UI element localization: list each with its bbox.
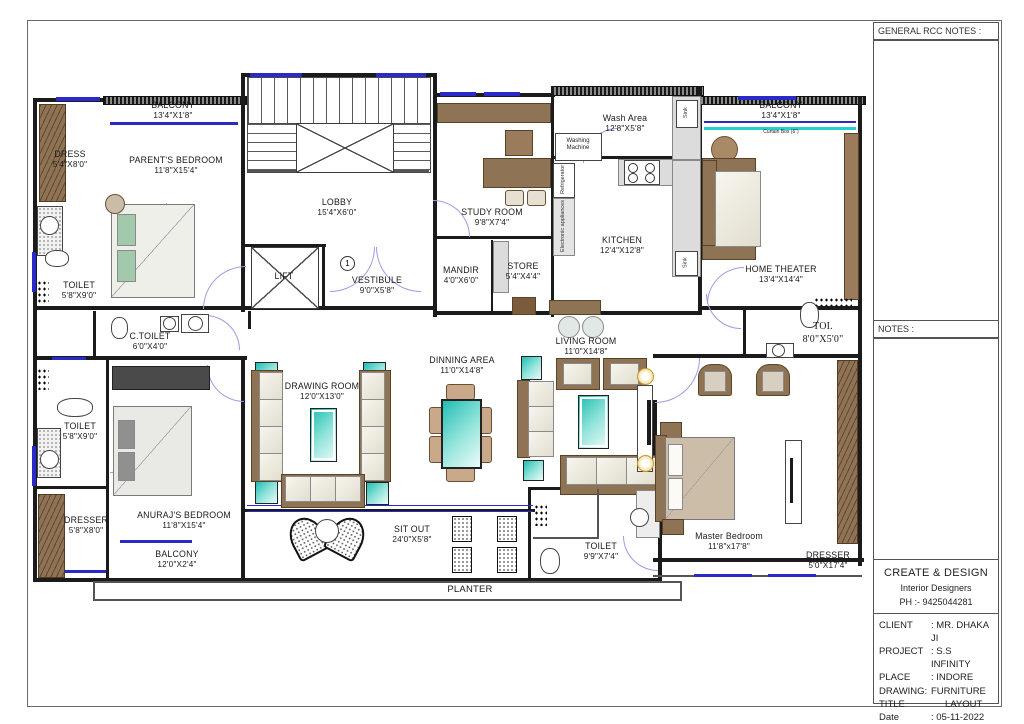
planter-line	[93, 581, 95, 599]
room-label-store: STORE5'4"X4'4"	[506, 261, 540, 283]
side-table	[662, 519, 684, 535]
sofa-cushion	[310, 476, 336, 502]
armchair-cushion	[762, 371, 784, 392]
sofa-cushion	[596, 457, 627, 485]
room-label-balcony-tl: BALCONY13'4"X1'8"	[151, 100, 194, 122]
shower-fittings	[534, 504, 547, 526]
armchair-cushion	[704, 371, 726, 392]
stair-treads	[392, 123, 431, 173]
planter-line	[93, 599, 682, 601]
center-table	[310, 408, 337, 462]
burner	[645, 163, 655, 173]
washing-machine-label: Washing Machine	[556, 138, 600, 152]
sofa-cushion	[361, 372, 385, 400]
window	[694, 574, 752, 577]
wall-hatched	[551, 86, 704, 96]
info-row-client: CLIENT: MR. DHAKA JI	[874, 619, 998, 645]
room-label-toilet-tl: TOILET5'8"X9'0"	[62, 280, 96, 302]
firm-phone: PH :- 9425044281	[874, 597, 998, 607]
info-row-drawing: DRAWING:FURNITURE	[874, 685, 998, 698]
room-label-balcony-bl: BALCONY12'0"X2'4"	[155, 549, 198, 571]
sofa-cushion	[335, 476, 361, 502]
room-label-dresser-l: DRESSER5'8"X8'0"	[64, 515, 108, 537]
console	[549, 300, 601, 315]
room-label-study: STUDY ROOM9'8"X7'4"	[461, 207, 522, 229]
pillow	[117, 250, 136, 282]
toilet-wc	[57, 398, 93, 417]
room-label-c-toilet: C.TOILET6'0"X4'0"	[129, 331, 170, 353]
project-info-box: CLIENT: MR. DHAKA JI PROJECT: S.S INFINI…	[873, 613, 999, 704]
dressing-mirror	[790, 458, 793, 503]
wall	[33, 98, 37, 582]
wall	[106, 356, 109, 582]
gas-stove	[624, 160, 660, 185]
room-label-living: LIVING ROOM11'0"X14'8"	[556, 336, 617, 358]
shelf	[437, 103, 551, 123]
window	[56, 97, 100, 101]
dining-table	[441, 399, 482, 469]
room-label-vestibule: VESTIBULE9'0"X5'8"	[352, 275, 402, 297]
window-sill	[110, 122, 238, 125]
firm-box: CREATE & DESIGN Interior Designers PH :-…	[873, 559, 999, 614]
electronic-appliances-label: Electronic appliances	[554, 200, 572, 252]
sofa-cushion	[528, 431, 554, 457]
room-label-toilet-ml: TOILET5'8"X9'0"	[63, 421, 97, 443]
wall	[322, 245, 325, 308]
room-label-balcony-tr: BALCONY13'4"X1'8"	[759, 100, 802, 122]
stair-landing	[296, 123, 394, 173]
outdoor-chair	[452, 547, 472, 573]
outdoor-table	[315, 519, 339, 543]
pillow	[118, 452, 135, 481]
notes-heading: NOTES :	[874, 321, 998, 337]
general-notes-header: GENERAL RCC NOTES :	[873, 22, 999, 40]
shower-fittings	[37, 368, 49, 390]
chair	[505, 190, 524, 206]
room-label-dress: DRESS5'4"X8'0"	[53, 149, 87, 171]
window	[62, 570, 106, 573]
window	[440, 92, 476, 96]
stool	[558, 316, 580, 338]
window	[32, 446, 36, 486]
washbasin-bowl	[188, 316, 203, 331]
wardrobe	[112, 366, 210, 390]
pillow	[668, 444, 683, 476]
corner-table	[521, 356, 542, 380]
burner	[628, 173, 638, 183]
room-label-mandir: MANDIR4'0"X6'0"	[443, 265, 479, 287]
armchair-cushion	[610, 363, 639, 385]
study-chair	[505, 130, 533, 156]
pillow	[118, 420, 135, 449]
chair	[527, 190, 546, 206]
room-label-home-theater: HOME THEATER13'4"X14'4"	[745, 264, 816, 286]
washbasin	[40, 450, 59, 469]
wall	[528, 487, 531, 580]
window	[32, 252, 36, 292]
room-label-kitchen: KITCHEN12'4"X12'8"	[600, 235, 644, 257]
shower-partition	[533, 537, 599, 539]
room-label-toilet-b: TOILET9'9"X7'4"	[584, 541, 618, 563]
tv-panel	[647, 400, 651, 445]
room-label-anurajs-bedroom: ANURAJ'S BEDROOM11'8"X15'4"	[137, 510, 231, 532]
outdoor-chair	[452, 516, 472, 542]
planter-line	[93, 581, 682, 583]
room-label-drawing: DRAWING ROOM12'0"X13'0"	[285, 381, 359, 403]
toilet-wc	[540, 548, 560, 574]
window	[484, 92, 520, 96]
dining-chair	[446, 384, 475, 400]
armchair	[756, 364, 790, 396]
sofa-cushion	[361, 399, 385, 427]
sink-label: Sink	[677, 253, 694, 272]
dressing-unit	[785, 440, 802, 524]
stair-treads	[247, 123, 298, 173]
study-desk	[483, 158, 551, 188]
sofa-cushion	[285, 476, 311, 502]
planter-label: PLANTER	[447, 584, 492, 596]
info-row-place: PLACE: INDORE	[874, 671, 998, 684]
wall	[93, 311, 96, 360]
notes-box	[873, 338, 999, 560]
outdoor-chair	[497, 516, 517, 542]
theater-screen-unit	[844, 133, 859, 300]
washbasin-bowl	[772, 344, 785, 357]
armchair	[698, 364, 732, 396]
shower-fittings	[37, 280, 49, 304]
armchair-cushion	[563, 363, 592, 385]
wall	[248, 311, 251, 329]
general-notes-box	[873, 40, 999, 321]
sofa-cushion	[259, 372, 283, 400]
armchair	[556, 358, 600, 390]
wardrobe	[837, 360, 858, 544]
outdoor-chair	[497, 547, 517, 573]
room-label-parents-bedroom: PARENT'S BEDROOM11'8"X15'4"	[129, 155, 223, 177]
sofa-arm	[702, 245, 756, 260]
refrigerator-label: Refrigerator	[555, 164, 571, 194]
stool	[582, 316, 604, 338]
room-label-toi: TOI.8'0"X5'0"	[803, 320, 844, 346]
washbasin	[630, 508, 649, 527]
sofa-cushion	[361, 426, 385, 454]
sofa-cushion	[528, 381, 554, 407]
pillow	[668, 478, 683, 510]
shower-partition	[597, 489, 599, 538]
window-sill	[120, 540, 192, 543]
window	[52, 357, 86, 360]
decor-planter	[637, 455, 654, 472]
washbasin	[40, 216, 59, 235]
room-label-dresser-r: DRESSER5'0"X17'4"	[806, 550, 850, 572]
boundary-line	[653, 575, 862, 577]
wardrobe	[38, 494, 65, 578]
pillow	[117, 214, 136, 246]
shower-fittings	[814, 297, 852, 306]
curtain-box-label: Curtain Box (6")	[763, 130, 798, 136]
wall	[33, 486, 108, 489]
corner-table	[366, 482, 389, 505]
planter-line	[680, 581, 682, 599]
center-table	[578, 395, 609, 449]
room-label-wash-area: Wash Area12'8"X5'8"	[603, 113, 648, 135]
drawing-sheet: Washing Machine Sink Refrigerator Electr…	[0, 0, 1024, 724]
firm-subtitle: Interior Designers	[874, 583, 998, 593]
corner-table	[523, 460, 544, 481]
firm-name: CREATE & DESIGN	[874, 567, 998, 579]
room-label-dinning: DINNING AREA11'0"X14'8"	[429, 355, 494, 377]
sink-label: Sink	[678, 102, 694, 124]
window	[768, 574, 816, 577]
room-label-master-bedroom: Master Bedroom11'8"x17'8"	[695, 531, 763, 553]
info-row-title: TITLELAYOUT	[874, 698, 998, 711]
room-label-lift: LIFT	[275, 271, 294, 282]
sofa-cushion	[259, 399, 283, 427]
entry-marker: 1	[340, 256, 355, 271]
burner	[628, 163, 638, 173]
info-row-project: PROJECT: S.S INFINITY	[874, 645, 998, 671]
sofa-cushion	[259, 426, 283, 454]
decor-planter	[637, 368, 654, 385]
sofa-cushion	[566, 457, 597, 485]
store-console	[512, 297, 536, 315]
sofa-cushion	[259, 453, 283, 481]
washbasin-bowl	[163, 317, 176, 330]
burner	[645, 173, 655, 183]
side-table	[105, 194, 125, 214]
notes-header: NOTES :	[873, 320, 999, 338]
room-label-sit-out: SIT OUT24'0"X5'8"	[392, 524, 431, 546]
wall	[743, 306, 746, 358]
sofa-seat	[715, 171, 761, 247]
toilet-wc	[111, 317, 128, 339]
room-label-lobby: LOBBY15'4"X6'0"	[317, 197, 356, 219]
sofa-cushion	[528, 406, 554, 432]
corner-table	[255, 481, 278, 504]
info-row-date: Date: 05-11-2022	[874, 711, 998, 724]
toilet-wc	[45, 250, 69, 267]
wall	[858, 308, 862, 566]
general-notes-heading: GENERAL RCC NOTES :	[874, 23, 998, 39]
stair-treads	[247, 77, 431, 125]
